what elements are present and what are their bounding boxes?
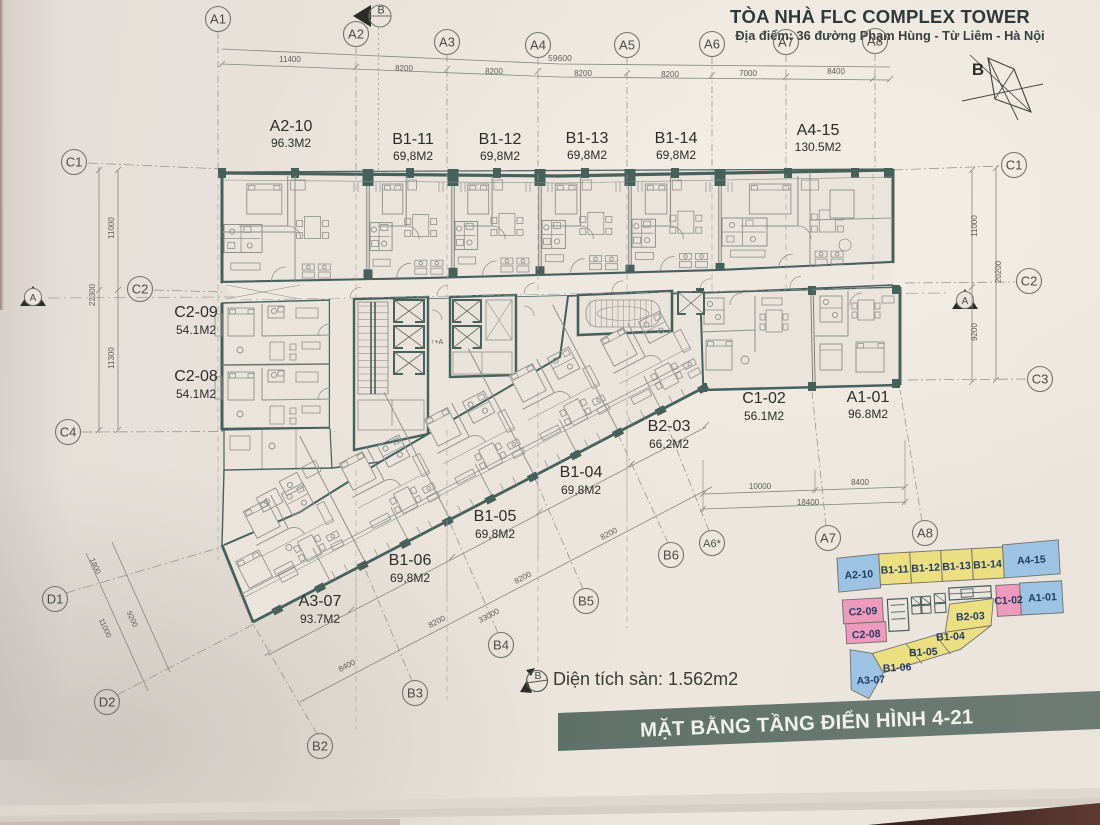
svg-text:56.1M2: 56.1M2 bbox=[744, 409, 784, 423]
svg-text:B: B bbox=[377, 5, 384, 17]
svg-text:8200: 8200 bbox=[485, 67, 503, 76]
svg-text:A3-07: A3-07 bbox=[299, 593, 342, 610]
svg-text:69,8M2: 69,8M2 bbox=[480, 149, 520, 163]
svg-text:54.1M2: 54.1M2 bbox=[176, 387, 216, 401]
svg-text:69,8M2: 69,8M2 bbox=[393, 149, 433, 163]
svg-text:8200: 8200 bbox=[395, 64, 413, 73]
svg-text:B1-06: B1-06 bbox=[389, 552, 432, 569]
svg-text:A8: A8 bbox=[917, 526, 933, 541]
svg-text:C2: C2 bbox=[1021, 274, 1038, 289]
svg-text:A1-01: A1-01 bbox=[847, 389, 890, 406]
svg-text:A4: A4 bbox=[530, 38, 546, 53]
svg-text:B1-14: B1-14 bbox=[973, 558, 1002, 572]
svg-text:A4-15: A4-15 bbox=[797, 122, 840, 139]
svg-text:11000: 11000 bbox=[107, 217, 116, 239]
svg-text:B1-06: B1-06 bbox=[883, 661, 912, 675]
svg-text:A8: A8 bbox=[867, 34, 883, 49]
svg-text:C2-09: C2-09 bbox=[174, 304, 218, 321]
svg-text:1800: 1800 bbox=[88, 557, 103, 576]
svg-text:69,8M2: 69,8M2 bbox=[567, 148, 607, 162]
svg-text:11000: 11000 bbox=[970, 215, 979, 237]
svg-text:A3: A3 bbox=[439, 35, 455, 50]
svg-text:Diện tích sàn: 1.562m2: Diện tích sàn: 1.562m2 bbox=[553, 669, 738, 689]
svg-text:C3: C3 bbox=[1032, 372, 1049, 387]
svg-text:93.7M2: 93.7M2 bbox=[300, 612, 340, 626]
svg-text:9200: 9200 bbox=[970, 323, 979, 341]
svg-text:130.5M2: 130.5M2 bbox=[795, 140, 842, 154]
svg-text:11400: 11400 bbox=[279, 55, 301, 64]
svg-text:A5: A5 bbox=[619, 38, 635, 53]
svg-text:B1-12: B1-12 bbox=[911, 561, 940, 575]
svg-text:A6: A6 bbox=[704, 37, 720, 52]
svg-text:A2-10: A2-10 bbox=[270, 118, 313, 135]
svg-text:C4: C4 bbox=[60, 425, 77, 440]
svg-text:54.1M2: 54.1M2 bbox=[176, 323, 216, 337]
svg-text:B1-14: B1-14 bbox=[655, 130, 698, 147]
svg-text:C2-08: C2-08 bbox=[852, 628, 881, 642]
svg-text:B1-12: B1-12 bbox=[479, 131, 522, 148]
svg-text:↑+A: ↑+A bbox=[431, 339, 444, 346]
svg-text:96.8M2: 96.8M2 bbox=[848, 407, 888, 421]
svg-text:C1: C1 bbox=[1006, 158, 1023, 173]
svg-text:59600: 59600 bbox=[548, 53, 572, 63]
svg-text:69,8M2: 69,8M2 bbox=[561, 483, 601, 497]
svg-text:A1: A1 bbox=[210, 12, 226, 27]
svg-text:8400: 8400 bbox=[827, 67, 845, 76]
svg-text:A: A bbox=[962, 296, 969, 307]
svg-text:B1-11: B1-11 bbox=[880, 563, 909, 577]
svg-text:B: B bbox=[972, 60, 984, 79]
svg-text:A3-07: A3-07 bbox=[856, 674, 885, 688]
svg-text:A7: A7 bbox=[778, 35, 794, 50]
svg-text:A7: A7 bbox=[820, 531, 836, 546]
svg-text:11000: 11000 bbox=[97, 617, 113, 639]
svg-text:B1-11: B1-11 bbox=[392, 131, 434, 148]
svg-text:96.3M2: 96.3M2 bbox=[271, 136, 311, 150]
svg-text:20200: 20200 bbox=[994, 260, 1003, 283]
svg-text:8400: 8400 bbox=[851, 478, 869, 487]
svg-text:D1: D1 bbox=[47, 592, 64, 607]
svg-text:69,8M2: 69,8M2 bbox=[656, 148, 696, 162]
svg-text:69,8M2: 69,8M2 bbox=[390, 571, 430, 585]
svg-text:33000: 33000 bbox=[477, 606, 501, 625]
svg-text:A1-01: A1-01 bbox=[1028, 591, 1057, 605]
svg-text:B5: B5 bbox=[578, 594, 594, 609]
svg-text:11300: 11300 bbox=[107, 347, 116, 369]
svg-text:C1-02: C1-02 bbox=[994, 594, 1023, 608]
svg-text:B2: B2 bbox=[312, 739, 328, 754]
svg-text:C2-09: C2-09 bbox=[848, 605, 877, 619]
svg-text:8200: 8200 bbox=[427, 613, 447, 629]
svg-text:C1-02: C1-02 bbox=[742, 390, 786, 407]
svg-text:B1-13: B1-13 bbox=[566, 130, 609, 147]
svg-text:B6: B6 bbox=[663, 548, 679, 563]
svg-text:A4-15: A4-15 bbox=[1017, 554, 1046, 568]
svg-text:B: B bbox=[534, 670, 541, 682]
svg-text:TÒA NHÀ FLC COMPLEX TOWER: TÒA NHÀ FLC COMPLEX TOWER bbox=[730, 6, 1030, 27]
svg-text:B2-03: B2-03 bbox=[956, 610, 985, 624]
svg-text:B1-04: B1-04 bbox=[936, 630, 965, 644]
svg-text:B1-05: B1-05 bbox=[474, 508, 517, 525]
svg-text:C1: C1 bbox=[66, 155, 83, 170]
svg-text:10000: 10000 bbox=[749, 482, 772, 491]
svg-text:66,2M2: 66,2M2 bbox=[649, 437, 689, 451]
svg-text:A6*: A6* bbox=[703, 538, 721, 550]
svg-text:8400: 8400 bbox=[337, 657, 357, 673]
svg-text:18400: 18400 bbox=[797, 498, 820, 507]
svg-text:B3: B3 bbox=[407, 686, 423, 701]
svg-text:69,8M2: 69,8M2 bbox=[475, 527, 515, 541]
svg-text:B1-04: B1-04 bbox=[560, 464, 603, 481]
svg-text:9200: 9200 bbox=[125, 610, 140, 629]
svg-text:B2-03: B2-03 bbox=[648, 418, 691, 435]
svg-text:8200: 8200 bbox=[661, 70, 679, 79]
svg-text:8200: 8200 bbox=[513, 569, 533, 585]
svg-text:8200: 8200 bbox=[574, 69, 592, 78]
svg-text:B4: B4 bbox=[493, 638, 509, 653]
svg-text:8200: 8200 bbox=[599, 525, 619, 541]
svg-text:A2: A2 bbox=[348, 27, 364, 42]
svg-text:A2-10: A2-10 bbox=[844, 568, 873, 582]
svg-text:C2-08: C2-08 bbox=[174, 368, 218, 385]
svg-text:A: A bbox=[30, 293, 37, 304]
svg-text:B1-13: B1-13 bbox=[942, 560, 971, 574]
svg-text:D2: D2 bbox=[99, 695, 116, 710]
svg-text:22300: 22300 bbox=[88, 283, 97, 306]
svg-text:7000: 7000 bbox=[739, 69, 757, 78]
svg-text:C2: C2 bbox=[132, 282, 149, 297]
svg-text:B1-05: B1-05 bbox=[909, 646, 938, 660]
